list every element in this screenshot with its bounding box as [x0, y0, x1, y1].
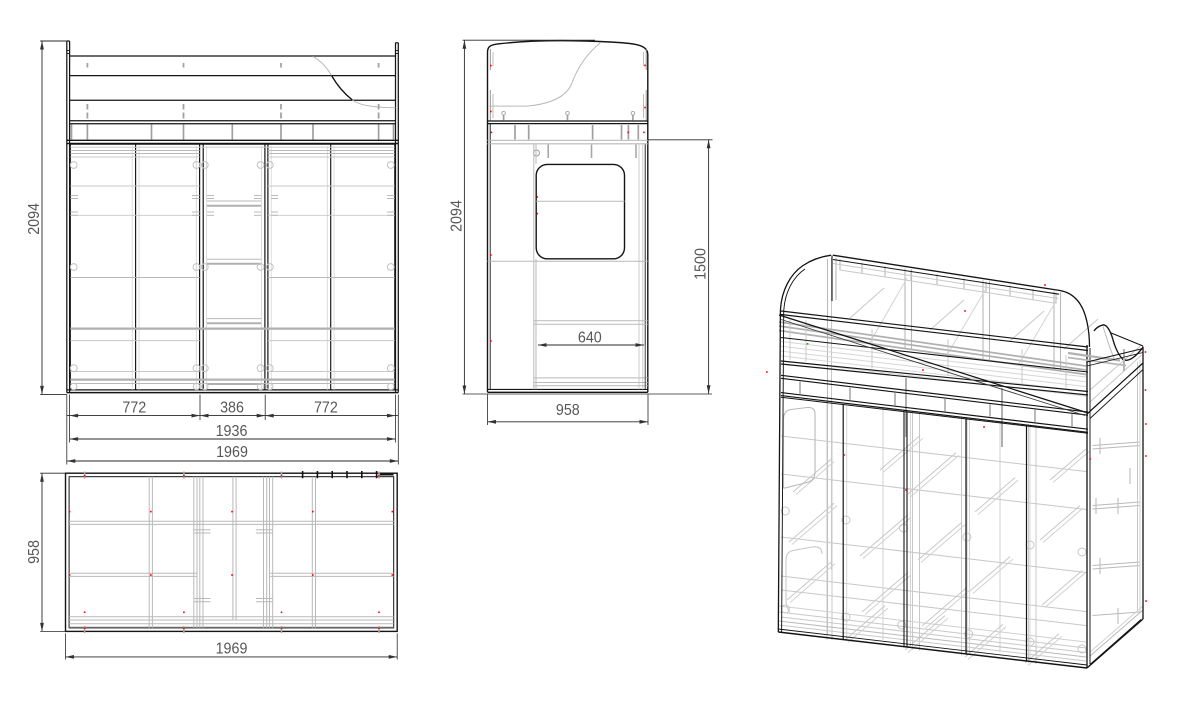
svg-text:1500: 1500: [692, 248, 710, 280]
svg-text:958: 958: [556, 401, 580, 419]
svg-text:2094: 2094: [26, 203, 44, 235]
svg-text:1969: 1969: [216, 443, 248, 461]
svg-text:2094: 2094: [448, 200, 466, 232]
svg-text:640: 640: [578, 329, 602, 347]
svg-text:1969: 1969: [216, 640, 248, 658]
svg-text:958: 958: [25, 540, 43, 564]
svg-text:386: 386: [220, 399, 244, 417]
svg-text:772: 772: [314, 399, 338, 417]
svg-text:772: 772: [122, 399, 146, 417]
svg-text:1936: 1936: [216, 422, 248, 440]
